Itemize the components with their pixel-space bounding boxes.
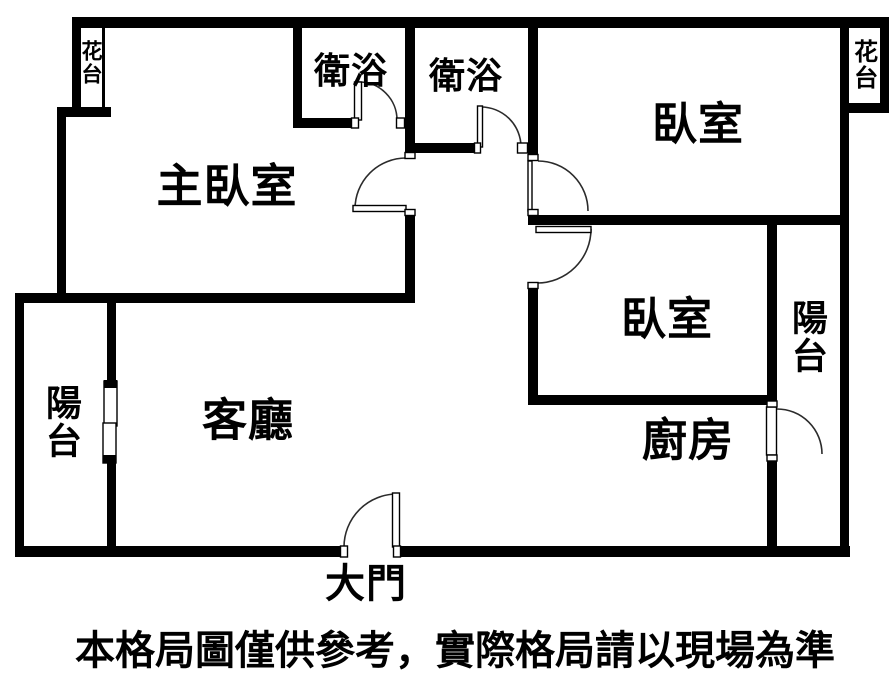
room-label-bedroom-mid: 臥室: [621, 295, 713, 342]
door-leaf-bathroom-2: [478, 106, 483, 147]
door-and-window-symbols: [0, 0, 889, 676]
door-leaf-main: [393, 493, 400, 547]
door-jamb: [405, 210, 415, 216]
door-jamb: [475, 143, 481, 153]
door-arc-kitchen: [777, 409, 822, 454]
door-jamb: [767, 401, 777, 407]
door-jamb: [341, 546, 348, 557]
door-leaf-bedroom-mid: [536, 227, 591, 233]
door-leaf-master: [353, 206, 406, 212]
room-label-bathroom-1: 衛浴: [314, 53, 388, 91]
door-jamb: [518, 143, 528, 153]
room-label-kitchen: 廚房: [642, 416, 734, 463]
label-main-door: 大門: [325, 563, 407, 605]
room-label-living-room: 客廳: [202, 396, 294, 443]
door-leaf-bedroom-top: [528, 161, 532, 211]
window-end-cap: [104, 380, 117, 388]
floor-plan: 主臥室 衛浴 衛浴 臥室 臥室 客廳 廚房 陽台 陽台 花台 花台 大門 本格局…: [0, 0, 889, 676]
room-label-balcony-left: 陽台: [41, 384, 79, 460]
disclaimer-text: 本格局圖僅供參考，實際格局請以現場為準: [75, 618, 835, 676]
door-arc-bathroom-2: [481, 107, 521, 147]
door-arc-bedroom-mid: [537, 229, 591, 283]
room-label-master-bedroom: 主臥室: [157, 162, 298, 210]
door-jamb: [397, 118, 405, 128]
room-label-balcony-right: 陽台: [787, 299, 825, 375]
door-jamb: [394, 546, 401, 557]
door-jamb: [528, 155, 538, 161]
window-end-cap: [103, 455, 116, 463]
door-jamb: [352, 118, 359, 128]
door-jamb: [767, 455, 777, 461]
room-label-flowerbox-right: 花台: [850, 39, 875, 91]
door-arc-main: [344, 494, 397, 547]
room-label-bathroom-2: 衛浴: [429, 58, 503, 96]
room-label-flowerbox-left: 花台: [80, 40, 102, 86]
door-arc-bedroom-top: [538, 161, 588, 211]
room-label-bedroom-top: 臥室: [652, 100, 744, 147]
door-jamb: [528, 283, 538, 289]
door-arc-master: [355, 158, 406, 209]
door-leaf-kitchen: [767, 407, 777, 455]
door-jamb: [405, 153, 415, 159]
door-jamb: [528, 210, 538, 216]
